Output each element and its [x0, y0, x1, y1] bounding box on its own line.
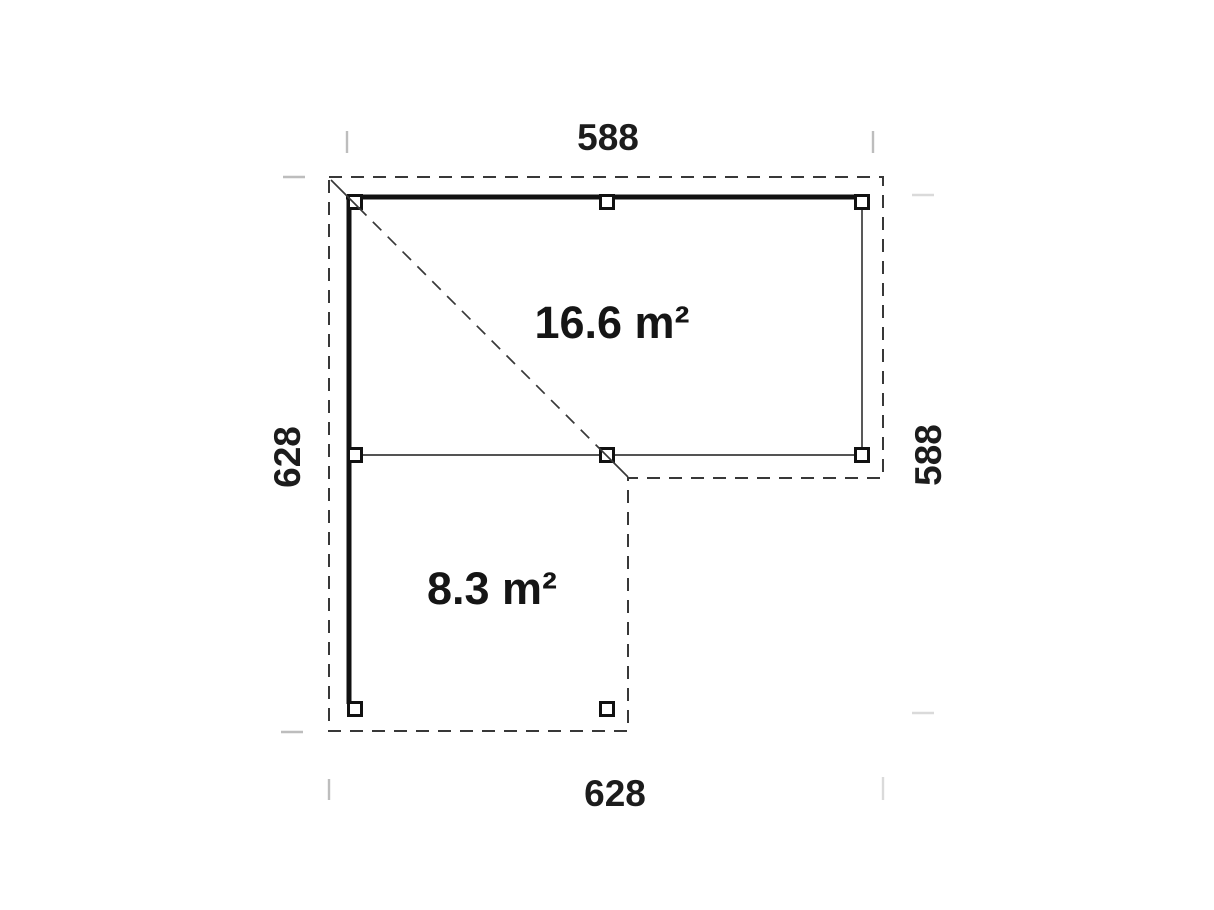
dimension-right-label: 588	[908, 424, 949, 486]
area-label-side-room: 8.3 m²	[427, 563, 557, 614]
dimension-left-label: 628	[267, 426, 308, 488]
post-bottom-left	[349, 703, 362, 716]
dimension-top-label: 588	[577, 117, 639, 158]
post-top-right	[856, 196, 869, 209]
post-middle-right	[856, 449, 869, 462]
post-bottom-middle	[601, 703, 614, 716]
area-label-main-room: 16.6 m²	[534, 297, 689, 348]
post-top-left	[349, 196, 362, 209]
post-top-middle	[601, 196, 614, 209]
dimension-bottom-label: 628	[584, 773, 646, 814]
post-middle-left	[349, 449, 362, 462]
diagonal-connector-top	[331, 180, 358, 207]
floor-plan-canvas: 588 628 588 628 16.6 m² 8.3 m²	[0, 0, 1214, 910]
